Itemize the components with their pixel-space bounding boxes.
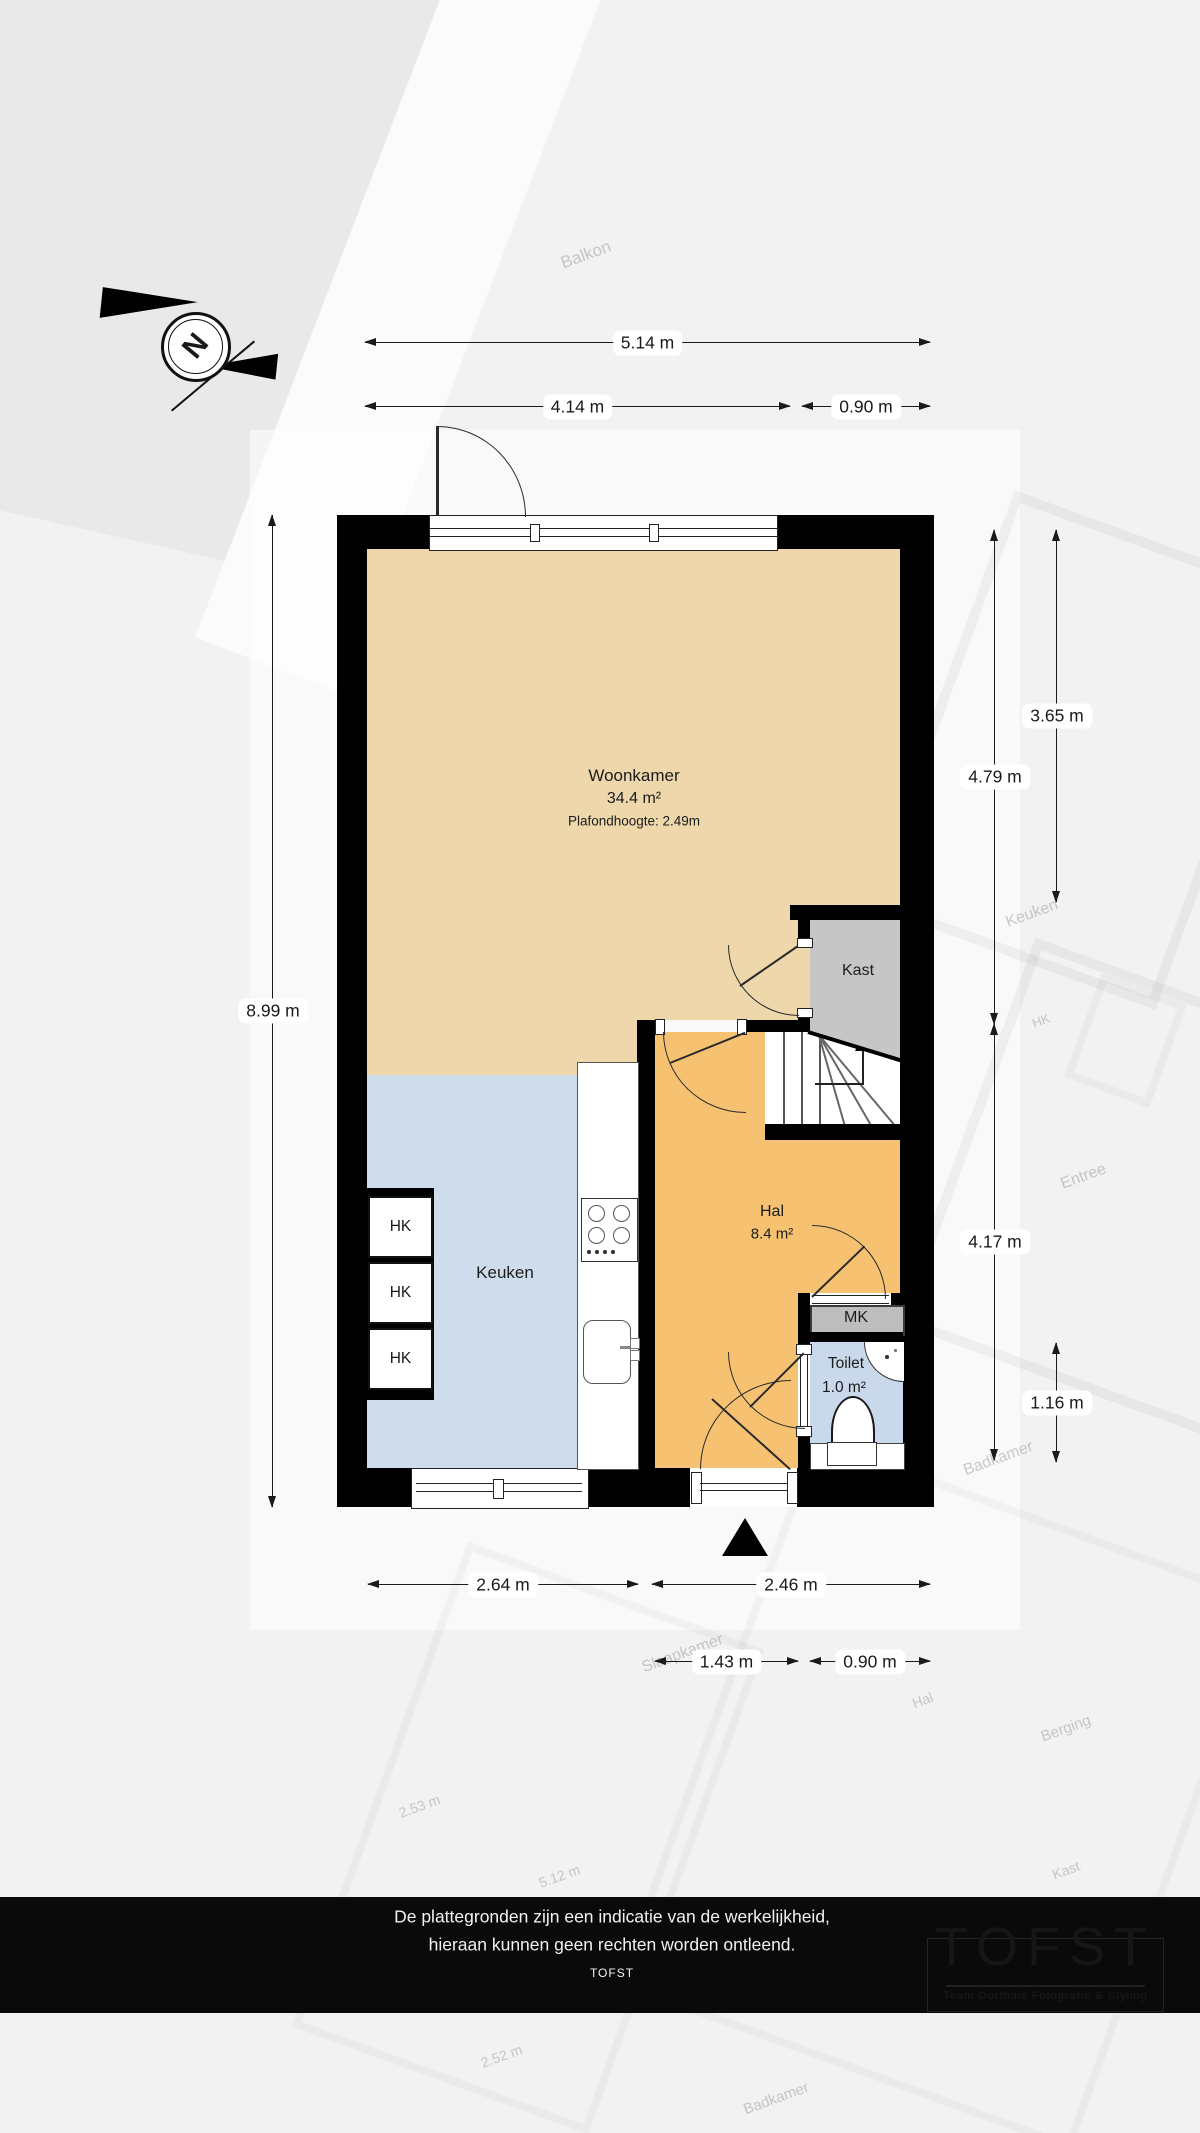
- window-mullion: [493, 1479, 504, 1499]
- wall-bottom-left: [337, 1468, 411, 1507]
- toilet-cistern-icon: [827, 1442, 877, 1466]
- dim-height-hal: 4.17 m: [994, 1024, 995, 1460]
- compass-north-letter: N: [176, 327, 216, 365]
- stove-icon: [581, 1198, 638, 1262]
- wall-right: [900, 515, 934, 1507]
- hk-label: HK: [390, 1218, 412, 1236]
- hk-label: HK: [390, 1350, 412, 1368]
- door-jamb: [797, 938, 813, 948]
- tofst-logo-subtitle: Team Oorthuis Fotografie & Styling: [943, 1990, 1148, 2002]
- kast-name: Kast: [842, 962, 874, 980]
- hk-label: HK: [390, 1284, 412, 1302]
- hk-cupboard: HK: [368, 1196, 433, 1258]
- balcony-door-leaf: [436, 426, 439, 516]
- room-woonkamer: [367, 1020, 577, 1075]
- faucet-base: [630, 1350, 640, 1361]
- toilet-area: 1.0 m²: [822, 1379, 866, 1397]
- dim-height-total: 8.99 m: [272, 515, 273, 1507]
- wall-top-left: [337, 515, 429, 549]
- wall-stair-bottom: [765, 1124, 903, 1140]
- background-label: Badkamer: [741, 2079, 811, 2118]
- hk-cupboard: HK: [368, 1328, 433, 1390]
- footer-disclaimer-bar: De plattegronden zijn een indicatie van …: [0, 1897, 1200, 2013]
- stair-tread-line: [819, 1032, 821, 1124]
- dim-height-toilet-label: 1.16 m: [1022, 1390, 1092, 1415]
- keuken-name: Keuken: [476, 1263, 534, 1283]
- entrance-arrow-icon: [722, 1518, 768, 1556]
- dim-width-total: 5.14 m: [365, 342, 930, 343]
- stair-tread-line: [783, 1032, 785, 1124]
- dim-width-keuken: 2.64 m: [368, 1584, 638, 1585]
- entrance-opening: [690, 1468, 797, 1507]
- hal-name: Hal: [760, 1203, 784, 1221]
- dim-height-woonkamer-label: 4.79 m: [960, 765, 1030, 790]
- window-mullion: [649, 524, 659, 542]
- background-label: Balkon: [558, 237, 614, 274]
- window-top: [429, 515, 778, 551]
- dim-height-toilet: 1.16 m: [1056, 1343, 1057, 1462]
- compass-circle: N: [161, 312, 231, 382]
- dim-width-entry: 1.43 m: [655, 1661, 798, 1662]
- dim-width-door-top: 0.90 m: [802, 406, 930, 407]
- dim-width-door-bottom-label: 0.90 m: [835, 1650, 905, 1675]
- stair-tread-line: [801, 1032, 803, 1124]
- door-jamb: [787, 1472, 798, 1504]
- window-glazing: [430, 528, 777, 537]
- dim-width-total-label: 5.14 m: [613, 331, 683, 356]
- wall-top-right: [776, 515, 934, 549]
- woonkamer-name: Woonkamer: [588, 766, 679, 786]
- floorplan-page: Balkon Keuken HK Entree Badkamer Slaapka…: [0, 0, 1200, 2133]
- dim-width-keuken-label: 2.64 m: [468, 1573, 538, 1598]
- window-mullion: [530, 524, 540, 542]
- compass-inner-ring: N: [168, 319, 223, 374]
- tofst-logo: TOFST Team Oorthuis Fotografie & Styling: [927, 1938, 1164, 2012]
- wall-keuken-hal: [637, 1020, 655, 1468]
- wall-bottom-right: [797, 1468, 934, 1507]
- dim-width-window: 4.14 m: [365, 406, 790, 407]
- stair-arrow-stem: [862, 1049, 864, 1085]
- dim-height-right-upper-label: 3.65 m: [1022, 704, 1092, 729]
- wall-kast-top: [790, 905, 934, 920]
- wall-mk-bottom: [798, 1332, 903, 1342]
- compass-rose: N: [95, 280, 295, 420]
- hal-area: 8.4 m²: [751, 1226, 794, 1243]
- door-threshold: [700, 1483, 787, 1491]
- dim-height-woonkamer: 4.79 m: [994, 530, 995, 1024]
- woonkamer-ceiling-height: Plafondhoogte: 2.49m: [568, 814, 700, 829]
- dim-width-hal-label: 2.46 m: [756, 1573, 826, 1598]
- faucet-base: [630, 1338, 640, 1349]
- footer-brand: TOFST: [590, 1966, 634, 1980]
- dim-width-hal: 2.46 m: [652, 1584, 930, 1585]
- woonkamer-area: 34.4 m²: [607, 790, 661, 808]
- kitchen-counter: [577, 1062, 639, 1470]
- toilet-name: Toilet: [828, 1355, 864, 1373]
- room-woonkamer: [577, 1020, 637, 1062]
- window-keuken: [411, 1468, 589, 1509]
- mk-name: MK: [844, 1309, 868, 1327]
- wall-mk-corner: [891, 1293, 903, 1305]
- dim-width-door-bottom: 0.90 m: [810, 1661, 930, 1662]
- dim-width-entry-label: 1.43 m: [692, 1650, 762, 1675]
- hk-cupboard: HK: [368, 1262, 433, 1324]
- sink-icon: [583, 1320, 631, 1384]
- dim-height-total-label: 8.99 m: [238, 999, 308, 1024]
- dim-width-window-label: 4.14 m: [543, 395, 613, 420]
- disclaimer-line2: hieraan kunnen geen rechten worden ontle…: [429, 1935, 796, 1956]
- stair-arrow-stem: [815, 1083, 864, 1085]
- ghost-plan-shape: [291, 1542, 764, 2133]
- tofst-logo-divider: [946, 1985, 1145, 1987]
- wall-bottom-middle: [587, 1468, 690, 1507]
- dim-width-door-top-label: 0.90 m: [831, 395, 901, 420]
- disclaimer-line1: De plattegronden zijn een indicatie van …: [394, 1907, 830, 1928]
- dim-height-hal-label: 4.17 m: [960, 1230, 1030, 1255]
- dim-height-right-upper: 3.65 m: [1056, 530, 1057, 902]
- tofst-logo-title: TOFST: [935, 1916, 1156, 1978]
- door-jamb: [797, 1008, 813, 1018]
